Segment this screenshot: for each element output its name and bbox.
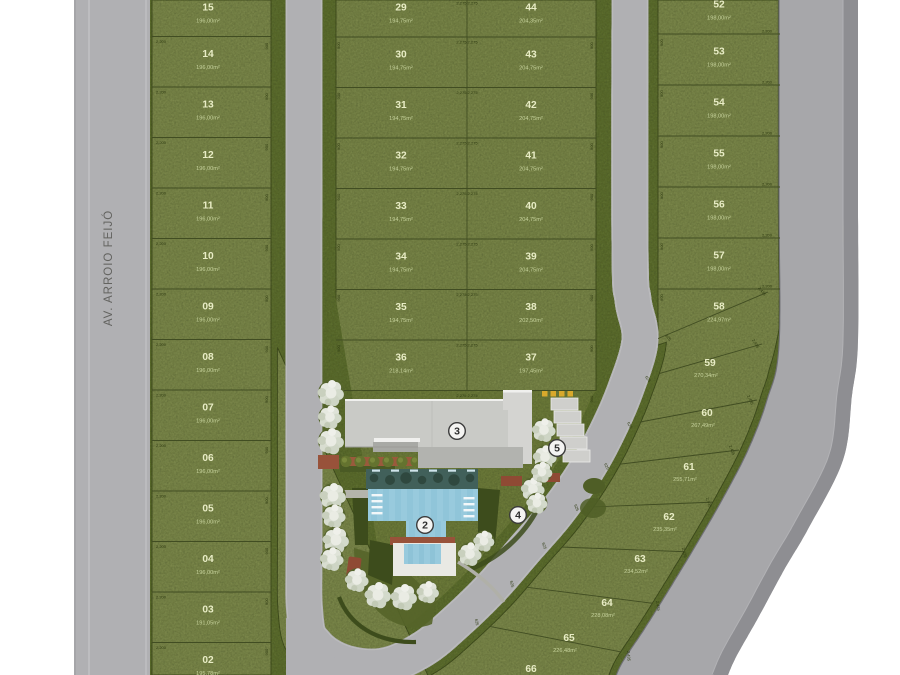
svg-text:29: 29 [395, 3, 407, 14]
svg-text:196,00m²: 196,00m² [196, 570, 220, 576]
svg-text:900: 900 [264, 42, 269, 49]
svg-text:2,200: 2,200 [156, 90, 167, 95]
svg-text:5: 5 [554, 443, 560, 455]
svg-text:2,200: 2,200 [762, 80, 773, 85]
svg-text:196,00m²: 196,00m² [196, 318, 220, 324]
svg-text:11: 11 [203, 201, 214, 212]
svg-text:900: 900 [264, 547, 269, 554]
svg-text:204,75m²: 204,75m² [519, 116, 543, 122]
svg-text:224,97m²: 224,97m² [707, 318, 731, 324]
svg-text:900: 900 [336, 92, 341, 99]
svg-text:900: 900 [659, 192, 664, 199]
svg-text:2,275 2,275: 2,275 2,275 [456, 393, 478, 398]
svg-text:202,50m²: 202,50m² [519, 318, 543, 324]
svg-text:2,275 2,275: 2,275 2,275 [456, 141, 478, 146]
svg-text:40: 40 [525, 201, 537, 212]
svg-text:2,275 2,275: 2,275 2,275 [456, 1, 478, 6]
svg-text:2,200: 2,200 [156, 494, 167, 499]
svg-text:61: 61 [683, 462, 695, 473]
svg-text:02: 02 [202, 655, 214, 666]
svg-text:44: 44 [525, 3, 537, 14]
svg-text:900: 900 [336, 143, 341, 150]
svg-text:196,00m²: 196,00m² [196, 217, 220, 223]
svg-text:204,75m²: 204,75m² [519, 268, 543, 274]
svg-text:196,00m²: 196,00m² [196, 116, 220, 122]
svg-text:2,200: 2,200 [762, 233, 773, 238]
svg-text:196,00m²: 196,00m² [196, 419, 220, 425]
svg-text:900: 900 [659, 243, 664, 250]
svg-text:194,75m²: 194,75m² [389, 318, 413, 324]
svg-text:198,00m²: 198,00m² [707, 216, 731, 222]
svg-text:56: 56 [713, 200, 725, 211]
svg-text:34: 34 [395, 252, 407, 263]
svg-text:08: 08 [202, 352, 214, 363]
svg-text:39: 39 [525, 252, 537, 263]
svg-text:31: 31 [395, 100, 407, 111]
svg-text:204,35m²: 204,35m² [519, 19, 543, 25]
svg-text:196,00m²: 196,00m² [196, 469, 220, 475]
svg-text:900: 900 [336, 345, 341, 352]
svg-text:15: 15 [202, 3, 214, 14]
svg-text:191,05m²: 191,05m² [196, 621, 220, 627]
svg-text:900: 900 [589, 42, 594, 49]
svg-text:38: 38 [525, 302, 537, 313]
svg-text:900: 900 [264, 396, 269, 403]
svg-text:234,52m²: 234,52m² [624, 569, 648, 575]
svg-text:900: 900 [336, 244, 341, 251]
svg-text:900: 900 [264, 295, 269, 302]
svg-text:196,00m²: 196,00m² [196, 19, 220, 25]
svg-text:66: 66 [525, 664, 537, 675]
svg-text:2,200: 2,200 [156, 39, 167, 44]
svg-text:194,75m²: 194,75m² [389, 217, 413, 223]
svg-text:900: 900 [589, 193, 594, 200]
svg-text:196,00m²: 196,00m² [196, 520, 220, 526]
svg-text:60: 60 [701, 408, 713, 419]
svg-text:63: 63 [634, 554, 646, 565]
svg-text:900: 900 [589, 395, 594, 402]
svg-text:2,275 2,275: 2,275 2,275 [456, 242, 478, 247]
svg-text:06: 06 [202, 453, 214, 464]
svg-text:900: 900 [589, 294, 594, 301]
svg-text:900: 900 [589, 244, 594, 251]
svg-text:2,200: 2,200 [156, 241, 167, 246]
svg-text:900: 900 [264, 143, 269, 150]
svg-text:55: 55 [713, 149, 725, 160]
svg-text:2,275 2,275: 2,275 2,275 [456, 292, 478, 297]
svg-text:228,08m²: 228,08m² [591, 613, 615, 619]
svg-text:04: 04 [202, 554, 214, 565]
svg-text:900: 900 [264, 497, 269, 504]
svg-text:218,14m²: 218,14m² [389, 369, 413, 375]
svg-text:196,00m²: 196,00m² [196, 267, 220, 273]
svg-text:2,200: 2,200 [156, 342, 167, 347]
svg-text:2,275 2,275: 2,275 2,275 [456, 191, 478, 196]
svg-text:12: 12 [202, 150, 214, 161]
svg-text:2,200: 2,200 [156, 595, 167, 600]
svg-text:196,00m²: 196,00m² [196, 65, 220, 71]
svg-text:900: 900 [659, 141, 664, 148]
svg-text:198,00m²: 198,00m² [707, 63, 731, 69]
svg-text:900: 900 [659, 39, 664, 46]
svg-text:13: 13 [202, 100, 214, 111]
svg-text:10: 10 [202, 251, 214, 262]
svg-text:2,200: 2,200 [156, 544, 167, 549]
svg-text:2,435: 2,435 [626, 651, 632, 662]
svg-text:2,200: 2,200 [156, 140, 167, 145]
svg-text:194,75m²: 194,75m² [389, 167, 413, 173]
svg-text:05: 05 [202, 504, 214, 515]
svg-text:196,00m²: 196,00m² [196, 166, 220, 172]
svg-text:64: 64 [601, 598, 613, 609]
svg-text:2,200: 2,200 [156, 393, 167, 398]
svg-text:194,75m²: 194,75m² [389, 268, 413, 274]
svg-text:198,00m²: 198,00m² [707, 16, 731, 22]
svg-text:900: 900 [336, 193, 341, 200]
svg-text:900: 900 [264, 244, 269, 251]
svg-text:204,75m²: 204,75m² [519, 66, 543, 72]
svg-text:2,275 2,275: 2,275 2,275 [456, 40, 478, 45]
svg-text:900: 900 [264, 446, 269, 453]
svg-text:2,200: 2,200 [156, 443, 167, 448]
svg-text:198,00m²: 198,00m² [707, 165, 731, 171]
svg-text:226,48m²: 226,48m² [553, 648, 577, 654]
svg-text:32: 32 [395, 151, 407, 162]
svg-text:2,200: 2,200 [762, 131, 773, 136]
svg-text:35: 35 [395, 302, 407, 313]
svg-text:900: 900 [264, 598, 269, 605]
svg-text:42: 42 [525, 100, 537, 111]
svg-text:900: 900 [589, 92, 594, 99]
svg-text:198,00m²: 198,00m² [707, 267, 731, 273]
svg-text:900: 900 [336, 42, 341, 49]
svg-text:2,275 2,275: 2,275 2,275 [456, 90, 478, 95]
svg-text:2,200: 2,200 [156, 645, 167, 650]
svg-text:2,275 2,275: 2,275 2,275 [456, 343, 478, 348]
svg-text:54: 54 [713, 98, 725, 109]
svg-text:2,200: 2,200 [762, 29, 773, 34]
svg-text:194,75m²: 194,75m² [389, 116, 413, 122]
svg-text:204,75m²: 204,75m² [519, 217, 543, 223]
svg-text:4: 4 [515, 510, 521, 522]
svg-text:14: 14 [202, 49, 214, 60]
svg-text:267,49m²: 267,49m² [691, 423, 715, 429]
svg-text:2: 2 [422, 520, 428, 532]
svg-text:198,00m²: 198,00m² [707, 114, 731, 120]
svg-text:09: 09 [202, 302, 214, 313]
svg-text:36: 36 [395, 353, 407, 364]
svg-text:197,45m²: 197,45m² [519, 369, 543, 375]
svg-text:900: 900 [659, 90, 664, 97]
svg-text:52: 52 [713, 0, 725, 11]
svg-text:255,71m²: 255,71m² [673, 477, 697, 483]
svg-text:59: 59 [704, 358, 716, 369]
svg-text:195,78m²: 195,78m² [196, 671, 220, 675]
svg-text:2,200: 2,200 [156, 191, 167, 196]
svg-text:07: 07 [202, 403, 214, 414]
svg-text:65: 65 [563, 633, 575, 644]
svg-text:37: 37 [525, 353, 537, 364]
svg-text:2,200: 2,200 [156, 292, 167, 297]
svg-text:900: 900 [336, 294, 341, 301]
svg-text:900: 900 [264, 93, 269, 100]
svg-text:AV. ARROIO FEIJÓ: AV. ARROIO FEIJÓ [102, 210, 115, 326]
svg-text:62: 62 [663, 512, 675, 523]
svg-text:194,75m²: 194,75m² [389, 19, 413, 25]
svg-text:196,00m²: 196,00m² [196, 368, 220, 374]
svg-text:53: 53 [713, 47, 725, 58]
svg-text:03: 03 [202, 605, 214, 616]
svg-text:900: 900 [264, 345, 269, 352]
svg-text:43: 43 [525, 50, 537, 61]
svg-text:900: 900 [264, 648, 269, 655]
svg-text:30: 30 [395, 50, 407, 61]
svg-text:900: 900 [264, 194, 269, 201]
svg-text:204,75m²: 204,75m² [519, 167, 543, 173]
svg-text:235,35m²: 235,35m² [653, 527, 677, 533]
svg-text:900: 900 [589, 345, 594, 352]
svg-text:194,75m²: 194,75m² [389, 66, 413, 72]
svg-text:57: 57 [713, 251, 725, 262]
svg-text:270,34m²: 270,34m² [694, 373, 718, 379]
svg-text:41: 41 [525, 151, 537, 162]
svg-text:3: 3 [454, 426, 460, 438]
svg-text:900: 900 [659, 294, 664, 301]
svg-text:900: 900 [589, 143, 594, 150]
svg-text:33: 33 [395, 201, 407, 212]
svg-text:2,200: 2,200 [762, 182, 773, 187]
